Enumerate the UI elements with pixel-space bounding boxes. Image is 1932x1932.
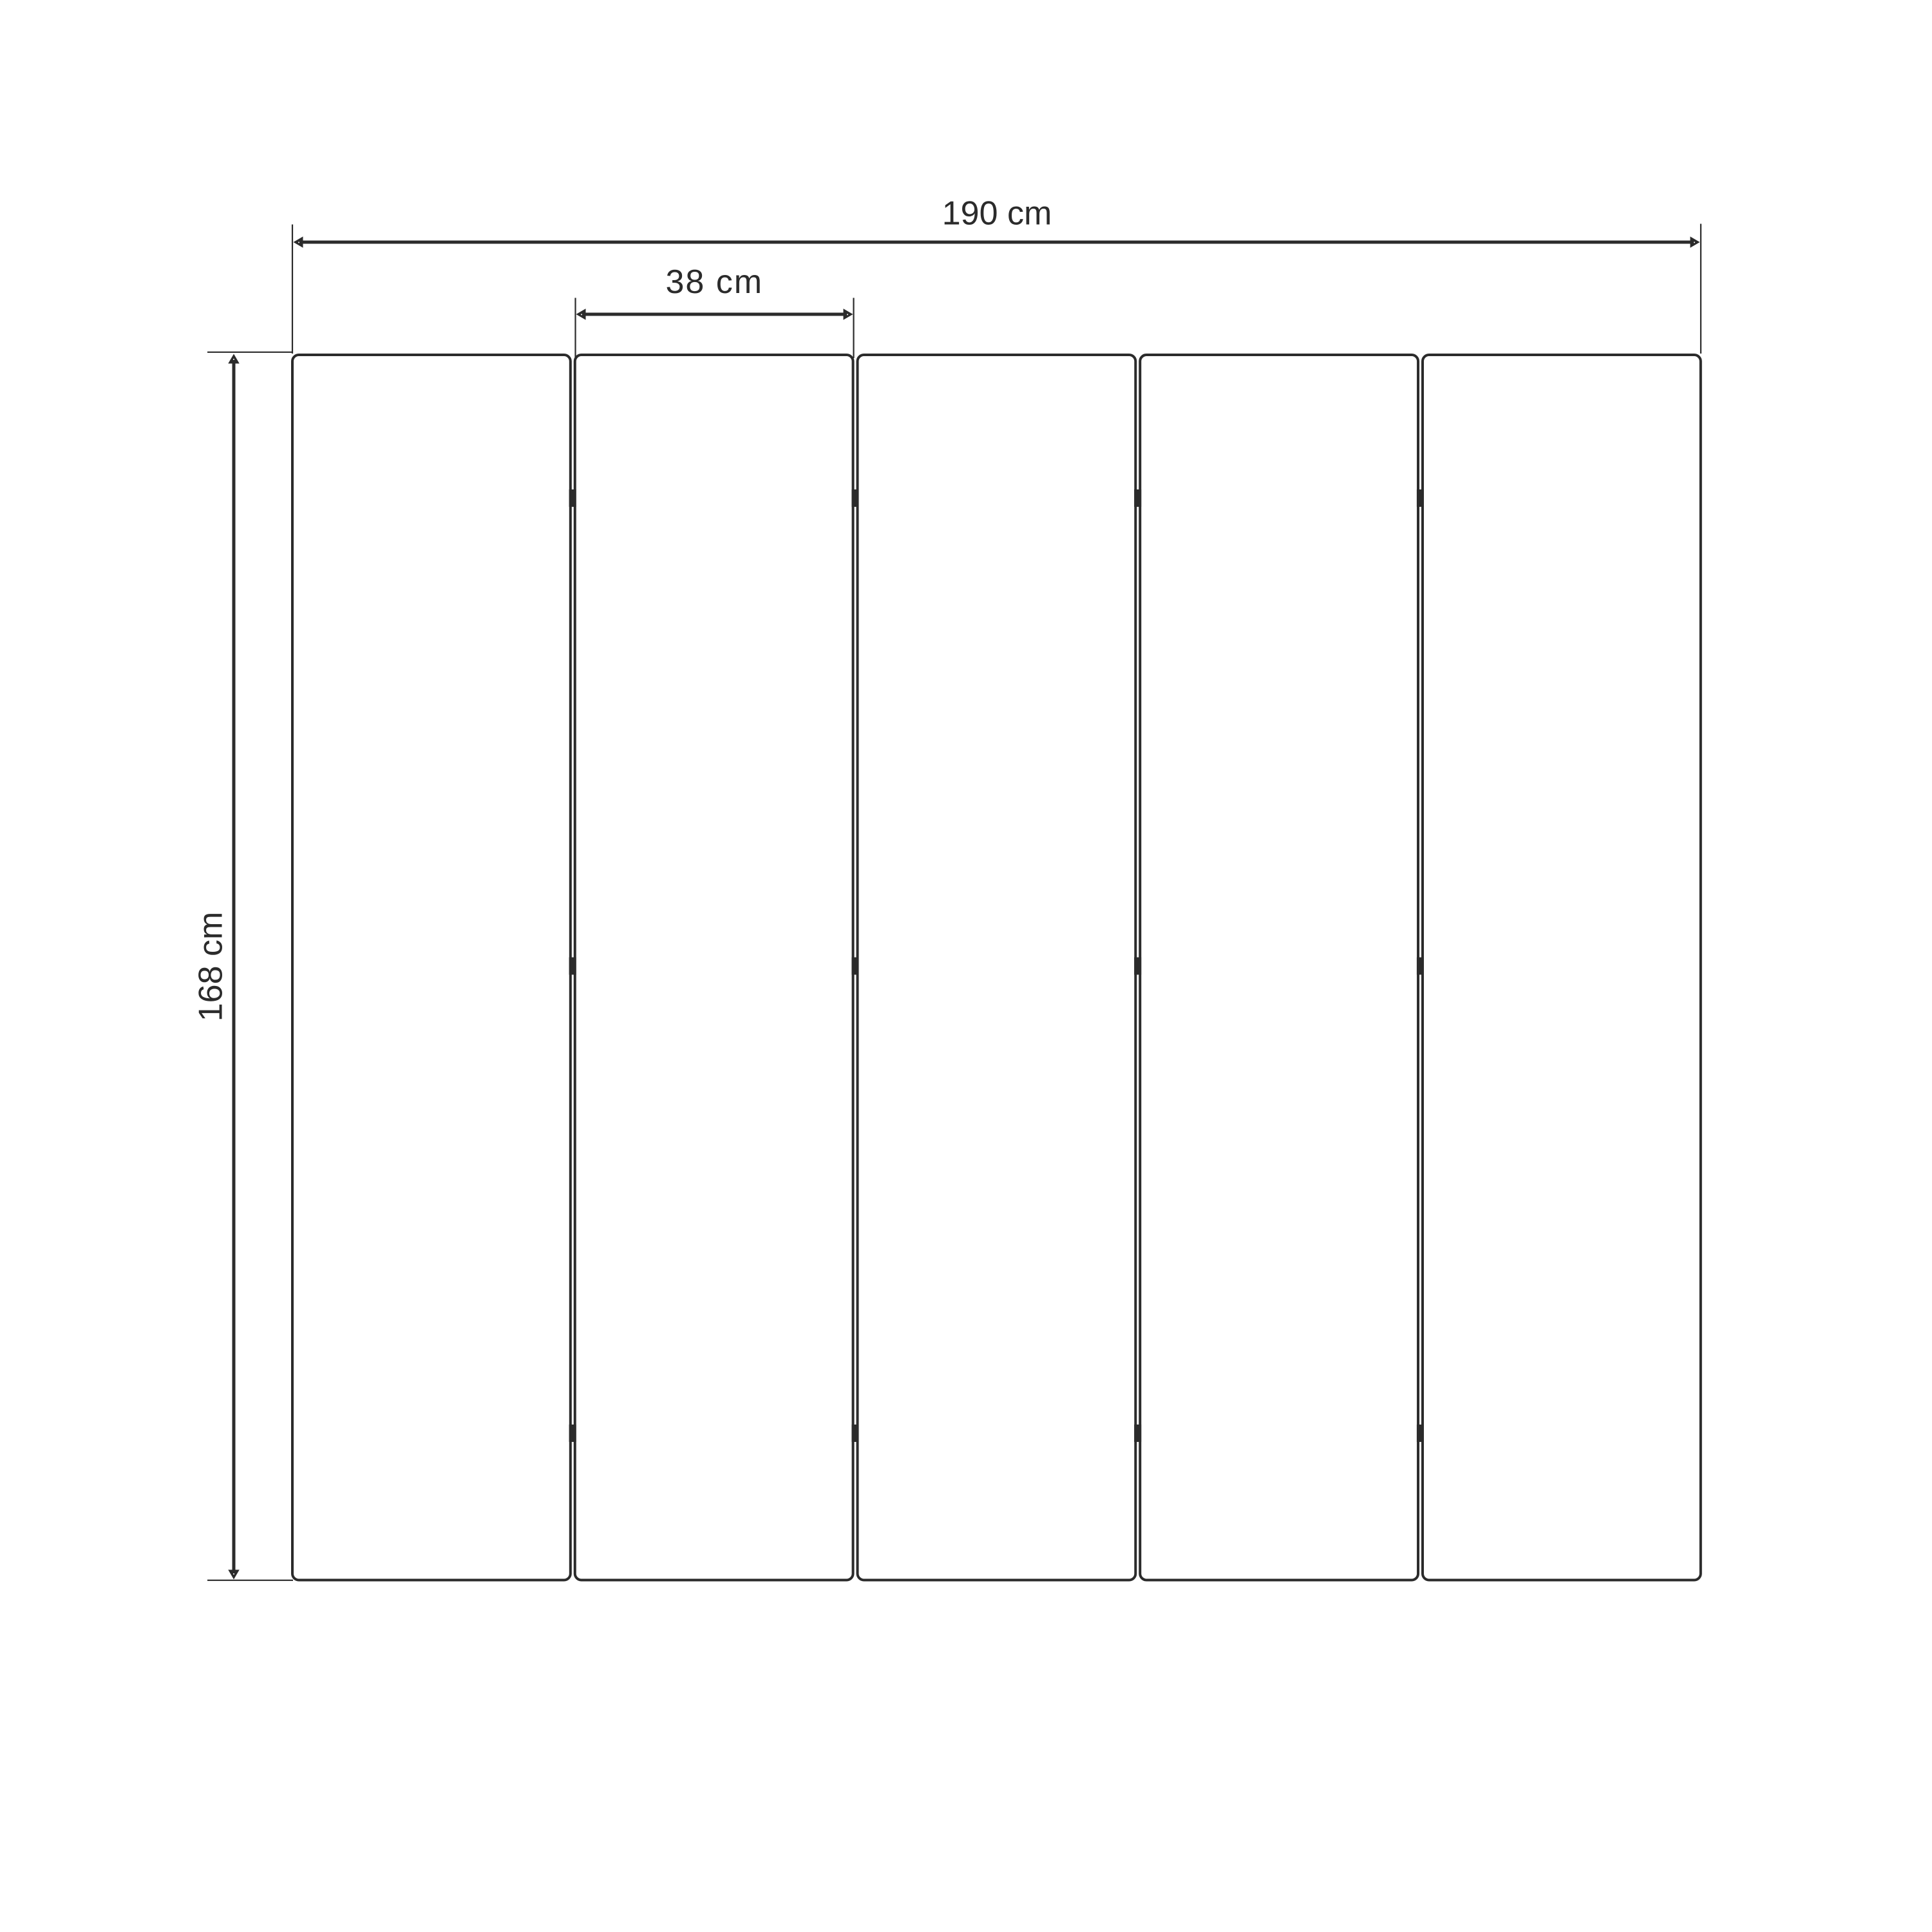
svg-text:190 cm: 190 cm [942, 195, 1052, 232]
svg-text:168 cm: 168 cm [193, 912, 230, 1022]
svg-text:38 cm: 38 cm [665, 263, 763, 301]
